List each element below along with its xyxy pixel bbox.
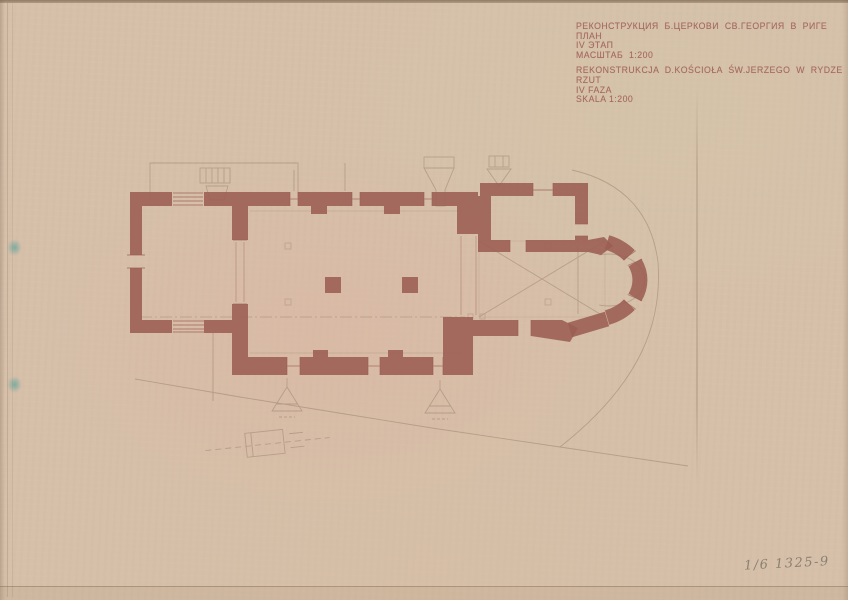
- walls-layer: [130, 183, 613, 375]
- south-buttress-1: [272, 378, 302, 417]
- tape-mark-top: [7, 239, 22, 256]
- nave-pillars: [325, 277, 418, 293]
- tower-west-door: [127, 255, 145, 268]
- paper-sheet: РЕКОНСТРУКЦИЯ Б.ЦЕРКОВИ СВ.ГЕОРГИЯ В РИГ…: [0, 0, 848, 600]
- nave-north-wall: [248, 192, 478, 234]
- chancel-arch-jambs: [461, 236, 476, 315]
- tower-north-passage: [173, 193, 203, 205]
- title-block: РЕКОНСТРУКЦИЯ Б.ЦЕРКОВИ СВ.ГЕОРГИЯ В РИГ…: [576, 22, 836, 105]
- title-pl-project: REKONSTRUKCJA D.KOŚCIOŁA ŚW.JERZEGO W RY…: [576, 66, 828, 76]
- tower-south-passage: [173, 321, 204, 332]
- title-ru-scale: МАСШТАБ 1:200: [576, 51, 828, 61]
- title-pl-view: RZUT: [576, 76, 828, 86]
- site-boundary-east-curve: [560, 170, 659, 447]
- tape-mark-bottom: [7, 376, 22, 393]
- northeast-buttress-outline: [487, 156, 511, 186]
- title-pl-scale: SKALA 1:200: [576, 95, 828, 105]
- gate-detail: [204, 425, 331, 462]
- tower-arch: [233, 240, 247, 304]
- chancel-vault-lines: [479, 241, 605, 317]
- site-boundary-south: [135, 379, 688, 466]
- chancel-south-door: [518, 320, 531, 336]
- south-buttress-2: [425, 380, 455, 419]
- west-tower-walls: [130, 192, 248, 333]
- title-ru-project: РЕКОНСТРУКЦИЯ Б.ЦЕРКОВИ СВ.ГЕОРГИЯ В РИГ…: [576, 22, 828, 32]
